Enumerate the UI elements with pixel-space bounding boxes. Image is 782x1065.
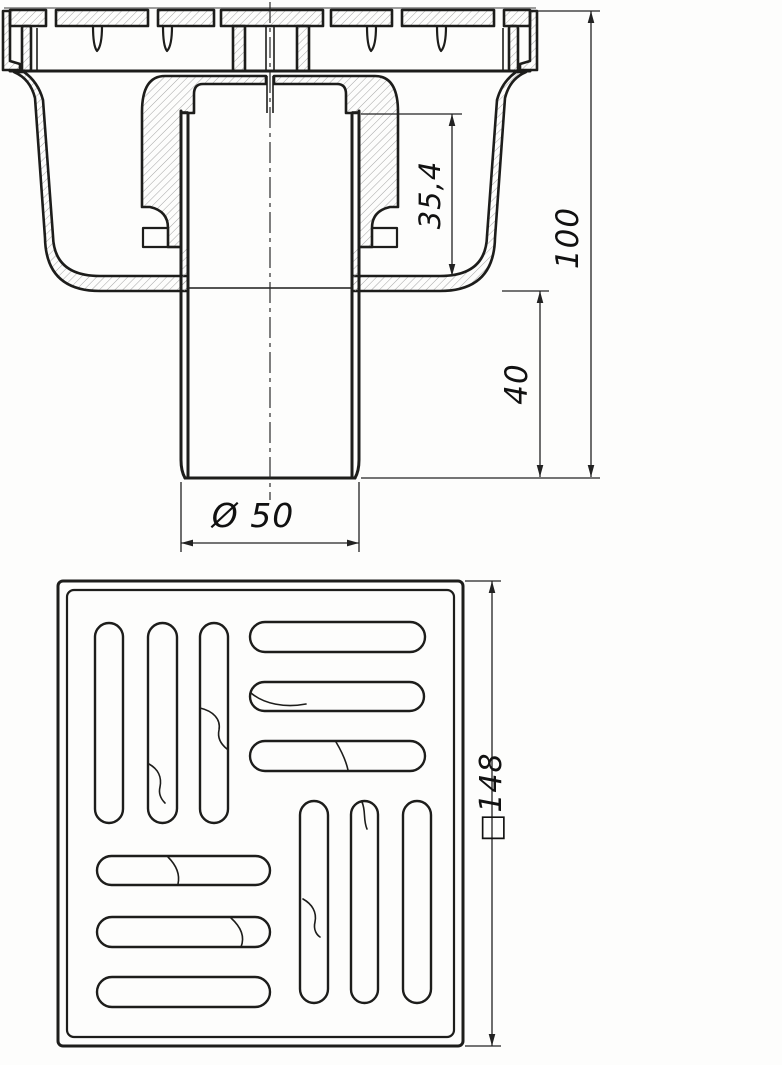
drawing-canvas: 35,4 40 100 Ø 50 bbox=[0, 0, 782, 1065]
funnel-left bbox=[142, 76, 266, 247]
section-view bbox=[3, 2, 537, 500]
right-rim-bar bbox=[509, 26, 518, 71]
crack-lines bbox=[149, 693, 367, 947]
dimension-outlet-length: 40 bbox=[499, 291, 549, 477]
grate-center-post bbox=[233, 26, 309, 71]
grate-slots-bottom-right bbox=[300, 801, 431, 1003]
funnel-right bbox=[274, 76, 398, 247]
dim-label-seal-depth: 35,4 bbox=[413, 161, 447, 230]
dim-label-grate-size: □148 bbox=[474, 752, 509, 842]
technical-drawing: 35,4 40 100 Ø 50 bbox=[0, 0, 782, 1065]
dim-label-outlet-length: 40 bbox=[499, 363, 535, 404]
grate-inner-border bbox=[67, 590, 454, 1037]
plan-view bbox=[58, 581, 463, 1046]
grate-slots-top-right bbox=[250, 622, 425, 771]
plan-dimensions: □148 bbox=[465, 581, 509, 1046]
left-rim-bar bbox=[22, 26, 31, 71]
grate-slots-bottom-left bbox=[97, 856, 270, 1007]
dim-label-outlet-diameter: Ø 50 bbox=[210, 496, 294, 535]
dimension-grate-size: □148 bbox=[465, 581, 509, 1046]
dim-label-overall-height: 100 bbox=[550, 207, 586, 269]
grate-slots-top-left bbox=[95, 623, 228, 823]
